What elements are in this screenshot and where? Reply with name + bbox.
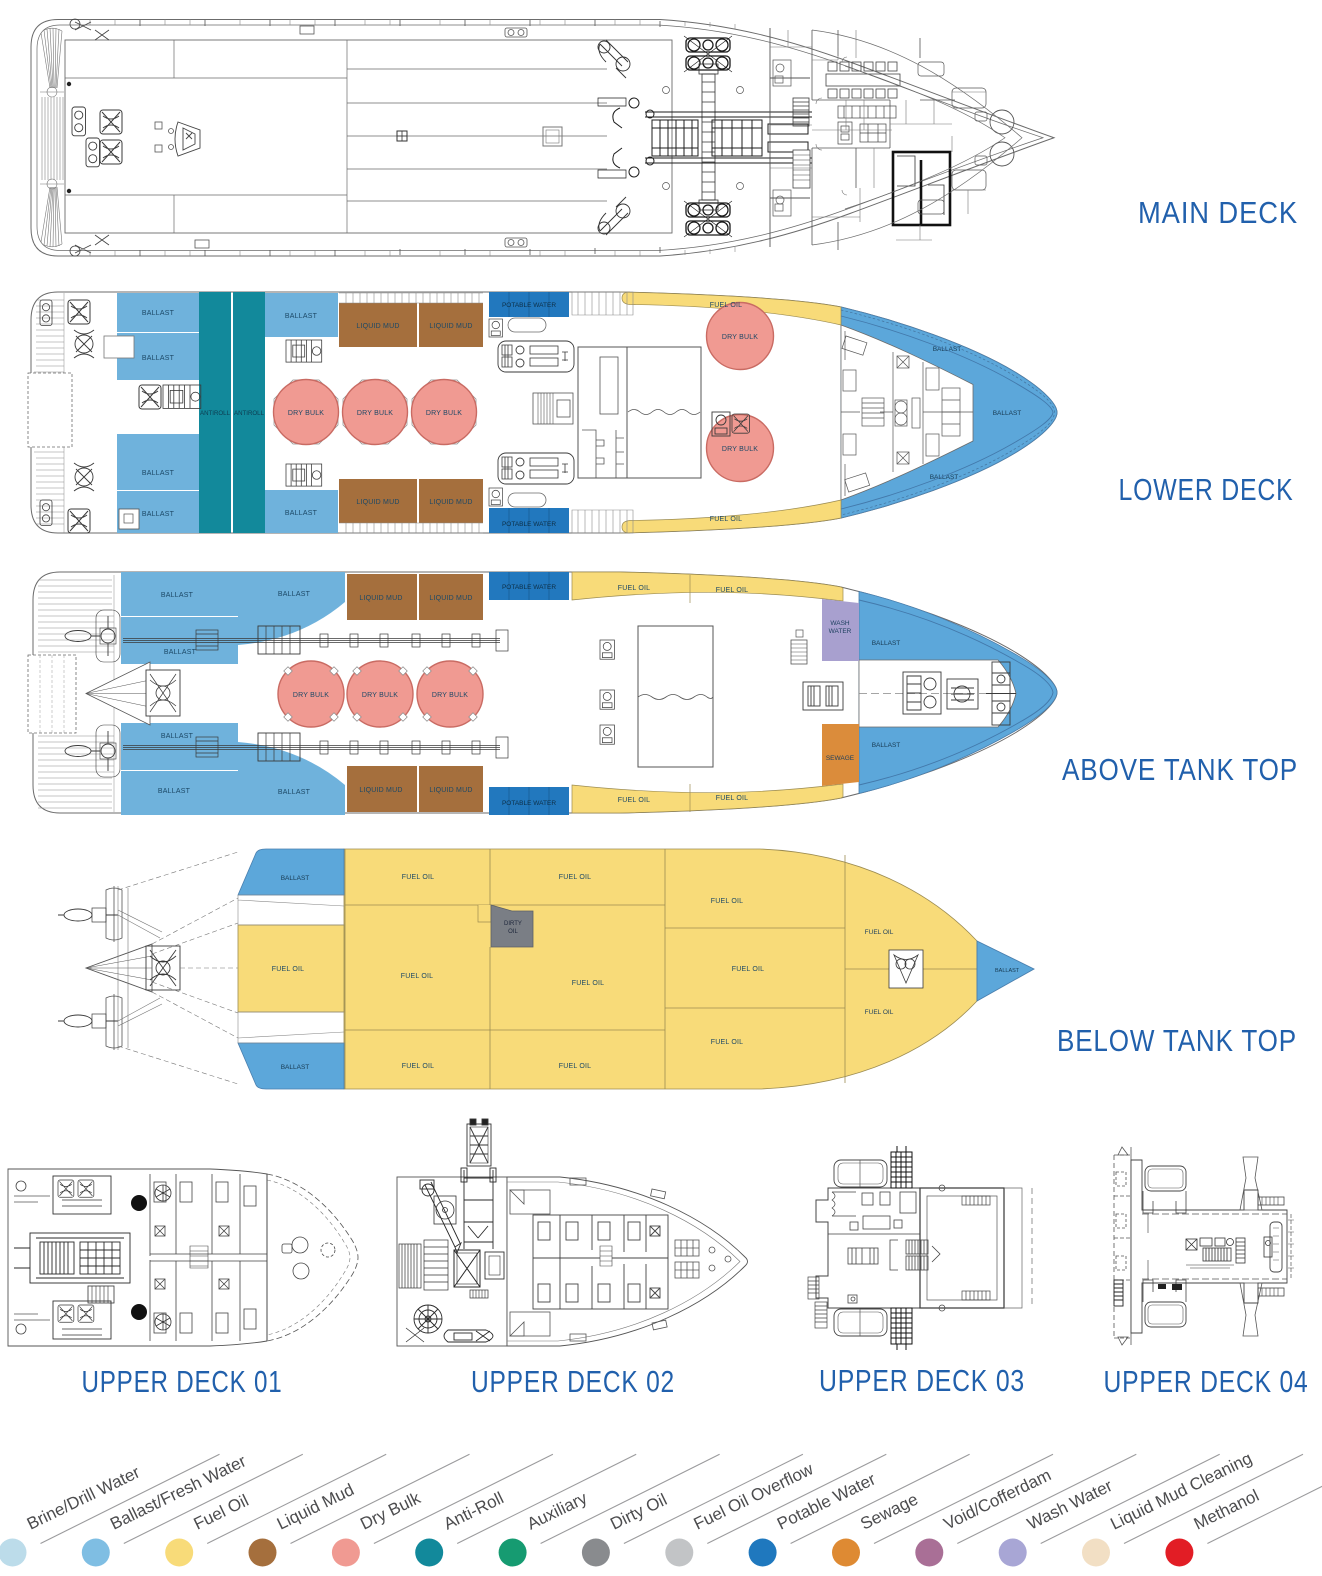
- svg-text:BALLAST: BALLAST: [285, 510, 318, 517]
- svg-text:LIQUID MUD: LIQUID MUD: [359, 595, 402, 602]
- svg-text:UPPER DECK 01: UPPER DECK 01: [82, 1364, 283, 1399]
- svg-text:UPPER DECK 03: UPPER DECK 03: [819, 1363, 1025, 1398]
- svg-text:BALLAST: BALLAST: [872, 742, 901, 749]
- svg-text:LIQUID MUD: LIQUID MUD: [359, 787, 402, 794]
- svg-text:BALLAST: BALLAST: [993, 410, 1022, 417]
- svg-text:BALLAST: BALLAST: [142, 355, 175, 362]
- svg-text:ABOVE TANK TOP: ABOVE TANK TOP: [1062, 752, 1298, 787]
- svg-text:FUEL OIL: FUEL OIL: [732, 966, 764, 973]
- svg-text:FUEL OIL: FUEL OIL: [710, 516, 742, 523]
- svg-text:POTABLE WATER: POTABLE WATER: [502, 521, 556, 528]
- svg-text:BALLAST: BALLAST: [164, 649, 197, 656]
- svg-text:DRY BULK: DRY BULK: [432, 692, 468, 699]
- svg-text:SEWAGE: SEWAGE: [826, 755, 855, 762]
- svg-text:UPPER DECK 02: UPPER DECK 02: [471, 1364, 675, 1399]
- svg-text:FUEL OIL: FUEL OIL: [865, 1009, 894, 1016]
- svg-text:DRY BULK: DRY BULK: [722, 446, 758, 453]
- svg-text:WASH: WASH: [830, 620, 850, 627]
- svg-text:ANTIROLL: ANTIROLL: [234, 410, 264, 417]
- svg-text:LIQUID MUD: LIQUID MUD: [429, 595, 472, 602]
- svg-text:FUEL OIL: FUEL OIL: [572, 980, 604, 987]
- svg-text:LIQUID MUD: LIQUID MUD: [429, 499, 472, 506]
- svg-text:FUEL OIL: FUEL OIL: [865, 929, 894, 936]
- svg-text:FUEL OIL: FUEL OIL: [401, 973, 433, 980]
- svg-text:FUEL OIL: FUEL OIL: [402, 874, 434, 881]
- svg-text:ANTIROLL: ANTIROLL: [200, 410, 230, 417]
- svg-text:LIQUID MUD: LIQUID MUD: [356, 499, 399, 506]
- svg-text:FUEL OIL: FUEL OIL: [618, 585, 650, 592]
- svg-text:BALLAST: BALLAST: [142, 511, 175, 518]
- svg-text:BALLAST: BALLAST: [933, 346, 962, 353]
- svg-text:LOWER DECK: LOWER DECK: [1119, 472, 1294, 507]
- svg-text:BALLAST: BALLAST: [278, 591, 311, 598]
- svg-text:BALLAST: BALLAST: [281, 1064, 310, 1071]
- svg-text:DRY BULK: DRY BULK: [362, 692, 398, 699]
- svg-text:FUEL OIL: FUEL OIL: [559, 1063, 591, 1070]
- svg-text:UPPER DECK 04: UPPER DECK 04: [1104, 1364, 1309, 1399]
- svg-text:DIRTY: DIRTY: [504, 921, 522, 927]
- svg-text:BALLAST: BALLAST: [995, 968, 1020, 974]
- svg-text:OIL: OIL: [508, 929, 518, 935]
- svg-text:DRY BULK: DRY BULK: [722, 334, 758, 341]
- svg-text:BALLAST: BALLAST: [281, 875, 310, 882]
- svg-text:BALLAST: BALLAST: [142, 310, 175, 317]
- svg-text:POTABLE WATER: POTABLE WATER: [502, 800, 556, 807]
- svg-text:DRY BULK: DRY BULK: [293, 692, 329, 699]
- svg-text:BALLAST: BALLAST: [872, 640, 901, 647]
- svg-text:MAIN DECK: MAIN DECK: [1138, 195, 1298, 230]
- svg-text:BALLAST: BALLAST: [285, 313, 318, 320]
- svg-text:DRY BULK: DRY BULK: [426, 410, 462, 417]
- svg-text:BALLAST: BALLAST: [278, 789, 311, 796]
- svg-text:LIQUID MUD: LIQUID MUD: [429, 787, 472, 794]
- svg-text:BALLAST: BALLAST: [142, 470, 175, 477]
- svg-text:POTABLE WATER: POTABLE WATER: [502, 302, 556, 309]
- svg-text:FUEL OIL: FUEL OIL: [716, 587, 748, 594]
- svg-text:DRY BULK: DRY BULK: [288, 410, 324, 417]
- svg-text:FUEL OIL: FUEL OIL: [272, 966, 304, 973]
- svg-text:DRY BULK: DRY BULK: [357, 410, 393, 417]
- svg-text:BELOW TANK TOP: BELOW TANK TOP: [1057, 1023, 1297, 1058]
- svg-text:FUEL OIL: FUEL OIL: [710, 302, 742, 309]
- svg-text:FUEL OIL: FUEL OIL: [402, 1063, 434, 1070]
- svg-text:FUEL OIL: FUEL OIL: [716, 795, 748, 802]
- svg-text:LIQUID MUD: LIQUID MUD: [429, 323, 472, 330]
- svg-text:FUEL OIL: FUEL OIL: [711, 898, 743, 905]
- svg-text:FUEL OIL: FUEL OIL: [618, 797, 650, 804]
- svg-text:LIQUID MUD: LIQUID MUD: [356, 323, 399, 330]
- svg-text:WATER: WATER: [829, 628, 852, 635]
- svg-text:POTABLE WATER: POTABLE WATER: [502, 584, 556, 591]
- svg-text:FUEL OIL: FUEL OIL: [559, 874, 591, 881]
- svg-text:BALLAST: BALLAST: [161, 733, 194, 740]
- svg-text:BALLAST: BALLAST: [158, 788, 191, 795]
- svg-text:BALLAST: BALLAST: [161, 592, 194, 599]
- svg-text:FUEL OIL: FUEL OIL: [711, 1039, 743, 1046]
